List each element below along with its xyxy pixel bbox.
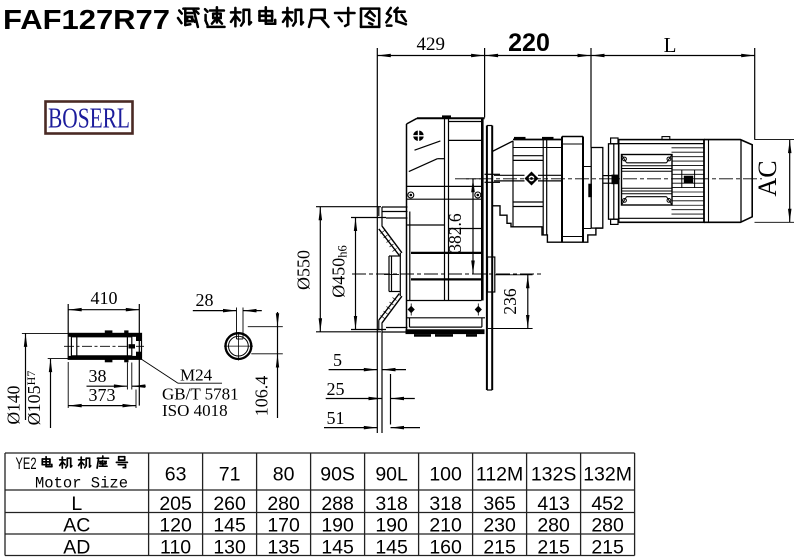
svg-text:51: 51	[327, 408, 345, 428]
svg-text:429: 429	[417, 34, 446, 55]
svg-text:145: 145	[321, 537, 354, 557]
svg-text:5: 5	[333, 350, 342, 370]
svg-text:280: 280	[267, 493, 300, 515]
svg-text:38: 38	[89, 366, 107, 386]
svg-text:AC: AC	[753, 160, 782, 196]
svg-text:Ø550: Ø550	[294, 250, 314, 290]
svg-text:L: L	[71, 493, 82, 515]
svg-text:130: 130	[213, 537, 246, 557]
svg-text:80: 80	[273, 464, 295, 486]
svg-text:190: 190	[375, 515, 408, 537]
svg-text:215: 215	[483, 537, 516, 557]
svg-text:220: 220	[508, 29, 550, 57]
svg-text:71: 71	[219, 464, 241, 486]
svg-text:M24: M24	[180, 366, 213, 385]
svg-text:132S: 132S	[531, 464, 577, 486]
svg-text:145: 145	[375, 537, 408, 557]
svg-text:215: 215	[537, 537, 570, 557]
svg-text:280: 280	[537, 515, 570, 537]
svg-text:318: 318	[429, 493, 462, 515]
svg-text:YE2: YE2	[16, 455, 37, 473]
svg-text:90S: 90S	[320, 464, 355, 486]
svg-text:106.4: 106.4	[252, 376, 272, 417]
svg-text:L: L	[664, 33, 677, 57]
svg-text:100: 100	[429, 464, 462, 486]
svg-text:288: 288	[321, 493, 354, 515]
svg-text:Ø105H7: Ø105H7	[24, 371, 44, 426]
svg-text:190: 190	[321, 515, 354, 537]
svg-text:452: 452	[591, 493, 624, 515]
svg-text:BOSERL: BOSERL	[48, 103, 130, 135]
svg-text:90L: 90L	[375, 464, 408, 486]
svg-text:170: 170	[267, 515, 300, 537]
svg-text:236: 236	[500, 288, 520, 315]
svg-text:205: 205	[159, 493, 192, 515]
svg-text:215: 215	[591, 537, 624, 557]
svg-text:145: 145	[213, 515, 246, 537]
svg-text:Ø140: Ø140	[4, 385, 24, 424]
svg-text:365: 365	[483, 493, 516, 515]
svg-text:Ø450h6: Ø450h6	[329, 245, 350, 298]
svg-text:230: 230	[483, 515, 516, 537]
svg-text:110: 110	[160, 537, 191, 557]
svg-text:413: 413	[537, 493, 570, 515]
svg-text:318: 318	[375, 493, 408, 515]
svg-text:135: 135	[267, 537, 300, 557]
svg-text:25: 25	[327, 379, 345, 399]
svg-text:132M: 132M	[583, 464, 632, 486]
svg-text:120: 120	[159, 515, 192, 537]
svg-text:63: 63	[165, 464, 187, 486]
svg-text:AC: AC	[63, 515, 90, 537]
svg-text:28: 28	[196, 290, 214, 310]
svg-text:FAF127R77: FAF127R77	[3, 4, 170, 35]
svg-text:260: 260	[213, 493, 246, 515]
svg-text:382.6: 382.6	[445, 213, 465, 253]
svg-text:280: 280	[591, 515, 624, 537]
svg-text:410: 410	[91, 288, 118, 308]
svg-text:373: 373	[89, 385, 116, 405]
svg-text:210: 210	[429, 515, 462, 537]
svg-text:AD: AD	[63, 537, 90, 557]
svg-text:Motor Size: Motor Size	[35, 475, 128, 493]
svg-text:ISO 4018: ISO 4018	[162, 401, 228, 420]
svg-text:160: 160	[429, 537, 462, 557]
svg-text:112M: 112M	[476, 464, 523, 486]
